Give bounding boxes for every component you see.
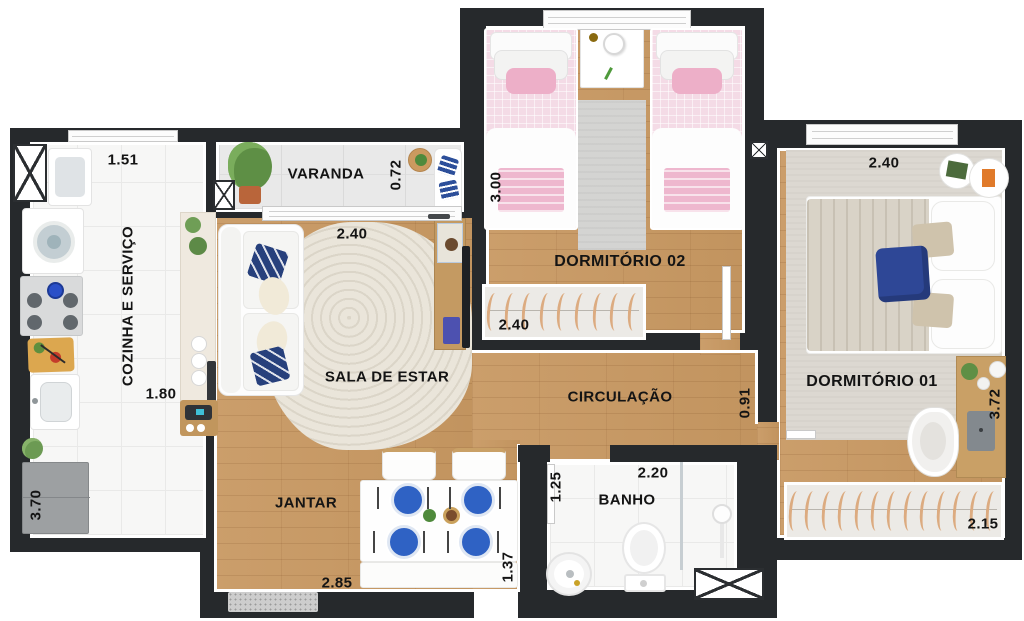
dining-table — [360, 480, 518, 562]
counter-plant — [189, 237, 207, 255]
cutlery — [499, 487, 501, 509]
dorm01-door-leaf — [786, 430, 816, 439]
kitchen-counter — [180, 212, 216, 422]
plate — [387, 525, 421, 559]
hanger-icon — [591, 293, 607, 332]
banho-top-wall-right — [610, 445, 777, 462]
hanger-icon — [787, 491, 803, 531]
twin-bed — [650, 28, 744, 230]
burner — [63, 293, 78, 308]
dim-dorm02-wardrobe: 2.40 — [499, 317, 530, 334]
room-label-sala: SALA DE ESTAR — [325, 369, 449, 386]
shaft-icon — [213, 180, 235, 210]
varanda-bench — [434, 148, 462, 212]
dorm02-rug — [578, 100, 646, 250]
liner — [755, 350, 758, 424]
plate — [391, 483, 425, 517]
flush-button — [640, 580, 647, 587]
dim-sala-window: 2.40 — [337, 226, 368, 243]
hanger-icon — [869, 491, 885, 531]
coffee-screen — [196, 409, 204, 415]
hanger-icon — [952, 491, 968, 531]
throw-pink — [498, 168, 564, 212]
hanger-icon — [608, 293, 624, 332]
cutting-board — [27, 337, 74, 373]
hanger-icon — [803, 491, 819, 531]
dim-circulacao: 0.91 — [737, 388, 754, 419]
double-bed — [806, 196, 1002, 354]
washer-drum — [47, 235, 61, 249]
dim-banho-top: 2.20 — [638, 465, 669, 482]
table-plant — [415, 154, 427, 166]
deco-blue-box — [443, 317, 460, 344]
dining-chair — [452, 448, 506, 480]
shower-stem — [720, 522, 724, 558]
room-label-cozinha: COZINHA E SERVIÇO — [120, 226, 137, 386]
room-label-circulacao: CIRCULAÇÃO — [568, 389, 673, 406]
floor-plan: COZINHA E SERVIÇO 1.51 1.80 3.70 VARANDA… — [0, 0, 1024, 621]
bath-sink — [546, 552, 592, 596]
lamp — [603, 33, 625, 55]
dim-jantar-width: 2.85 — [322, 575, 353, 592]
hanger-icon — [556, 293, 572, 332]
shaft-icon — [750, 141, 768, 159]
room-label-dormitorio02: DORMITÓRIO 02 — [554, 253, 685, 271]
centerpiece-plant — [423, 509, 436, 522]
deco-tray — [437, 223, 463, 263]
throw-pink — [664, 168, 730, 212]
cushion-pink — [672, 68, 722, 94]
cutlery — [497, 531, 499, 553]
sink-drain — [566, 570, 574, 578]
stove — [20, 276, 83, 336]
hanger-icon — [538, 293, 554, 332]
counter-appliance — [207, 361, 216, 405]
dim-jantar-depth: 1.37 — [500, 552, 517, 583]
room-label-banho: BANHO — [599, 492, 656, 509]
dim-cozinha-top: 1.51 — [108, 152, 139, 169]
cutlery — [373, 531, 375, 553]
coffee-station — [180, 400, 218, 436]
hanger-icon — [886, 491, 902, 531]
hanger-icon — [573, 293, 589, 332]
shaft-icon — [694, 568, 764, 600]
cushion-pink — [506, 68, 556, 94]
dim-dorm02-left: 3.00 — [488, 172, 505, 203]
liner — [472, 350, 758, 353]
dining-chair — [382, 448, 436, 480]
burner — [27, 293, 42, 308]
cup — [186, 424, 194, 432]
dorm01-window — [806, 124, 958, 145]
plant — [22, 438, 43, 459]
hanger-icon — [820, 491, 836, 531]
cutlery — [427, 487, 429, 509]
tv — [462, 246, 470, 348]
pen — [604, 67, 613, 80]
dorm02-door-leaf — [722, 266, 731, 340]
stove-knob — [47, 282, 64, 299]
banho-top-wall-left — [518, 445, 550, 462]
bench-pillow-blue — [437, 155, 460, 178]
side-tray — [970, 159, 1008, 197]
dim-cozinha-left: 3.70 — [28, 490, 45, 521]
cutlery — [423, 531, 425, 553]
centerpiece-bowl — [443, 507, 460, 524]
shaft-icon — [13, 144, 47, 202]
cutlery — [447, 531, 449, 553]
side-tray — [940, 154, 974, 188]
room-label-varanda: VARANDA — [288, 166, 365, 183]
desk-lamp — [989, 361, 1006, 378]
varanda-table — [408, 148, 432, 172]
cutlery — [377, 487, 379, 509]
book-green — [946, 160, 968, 179]
cutlery — [449, 487, 451, 509]
shower-divider — [680, 462, 683, 570]
stool — [191, 353, 207, 369]
plant-pot — [239, 186, 261, 204]
desk-chair — [908, 408, 958, 476]
washing-machine — [22, 208, 84, 274]
hanger-icon — [836, 491, 852, 531]
sofa-back — [221, 227, 241, 393]
plate — [461, 483, 495, 517]
sliding-door-handle — [428, 214, 450, 219]
room-label-dormitorio01: DORMITÓRIO 01 — [806, 373, 937, 391]
bench-pillow-blue — [438, 179, 459, 200]
stool — [191, 336, 207, 352]
laundry-tank — [48, 148, 92, 206]
dining-bench — [360, 562, 518, 588]
sink-basin — [40, 382, 72, 422]
hanger-icon — [853, 491, 869, 531]
kitchen-sink — [30, 374, 80, 430]
stool — [191, 370, 207, 386]
dim-dorm01-wardrobe: 2.15 — [968, 516, 999, 533]
hanger-icon — [935, 491, 951, 531]
shower-head — [712, 504, 732, 524]
dorm02-nightstand — [580, 26, 644, 88]
burner — [27, 315, 42, 330]
dorm02-window — [543, 10, 691, 30]
tank-basin — [55, 157, 85, 197]
dim-dorm01-right: 3.72 — [987, 389, 1004, 420]
book-orange — [980, 167, 997, 189]
cup — [197, 424, 205, 432]
dim-banho-left: 1.25 — [548, 472, 565, 503]
dim-cozinha-mid: 1.80 — [146, 386, 177, 403]
desk-plant — [961, 363, 978, 380]
toilet — [622, 522, 668, 594]
sink-soap — [574, 580, 580, 586]
deco-bowl — [445, 238, 458, 251]
counter-plant — [185, 217, 201, 233]
hanger-icon — [902, 491, 918, 531]
plate — [459, 525, 493, 559]
dim-dorm01-top: 2.40 — [869, 155, 900, 172]
toilet-seat — [630, 530, 658, 566]
hanger-icon — [919, 491, 935, 531]
dim-varanda-depth: 0.72 — [388, 160, 405, 191]
deco-dot — [589, 33, 598, 42]
pillow-blue — [875, 245, 931, 302]
burner — [63, 315, 78, 330]
room-label-jantar: JANTAR — [275, 495, 337, 512]
kitchen-window — [68, 130, 178, 142]
sofa — [218, 224, 304, 396]
hanger-icon — [626, 293, 642, 332]
entry-doormat — [228, 592, 318, 612]
laptop-logo — [979, 428, 983, 432]
chair-seat — [920, 422, 946, 460]
faucet — [32, 398, 38, 404]
